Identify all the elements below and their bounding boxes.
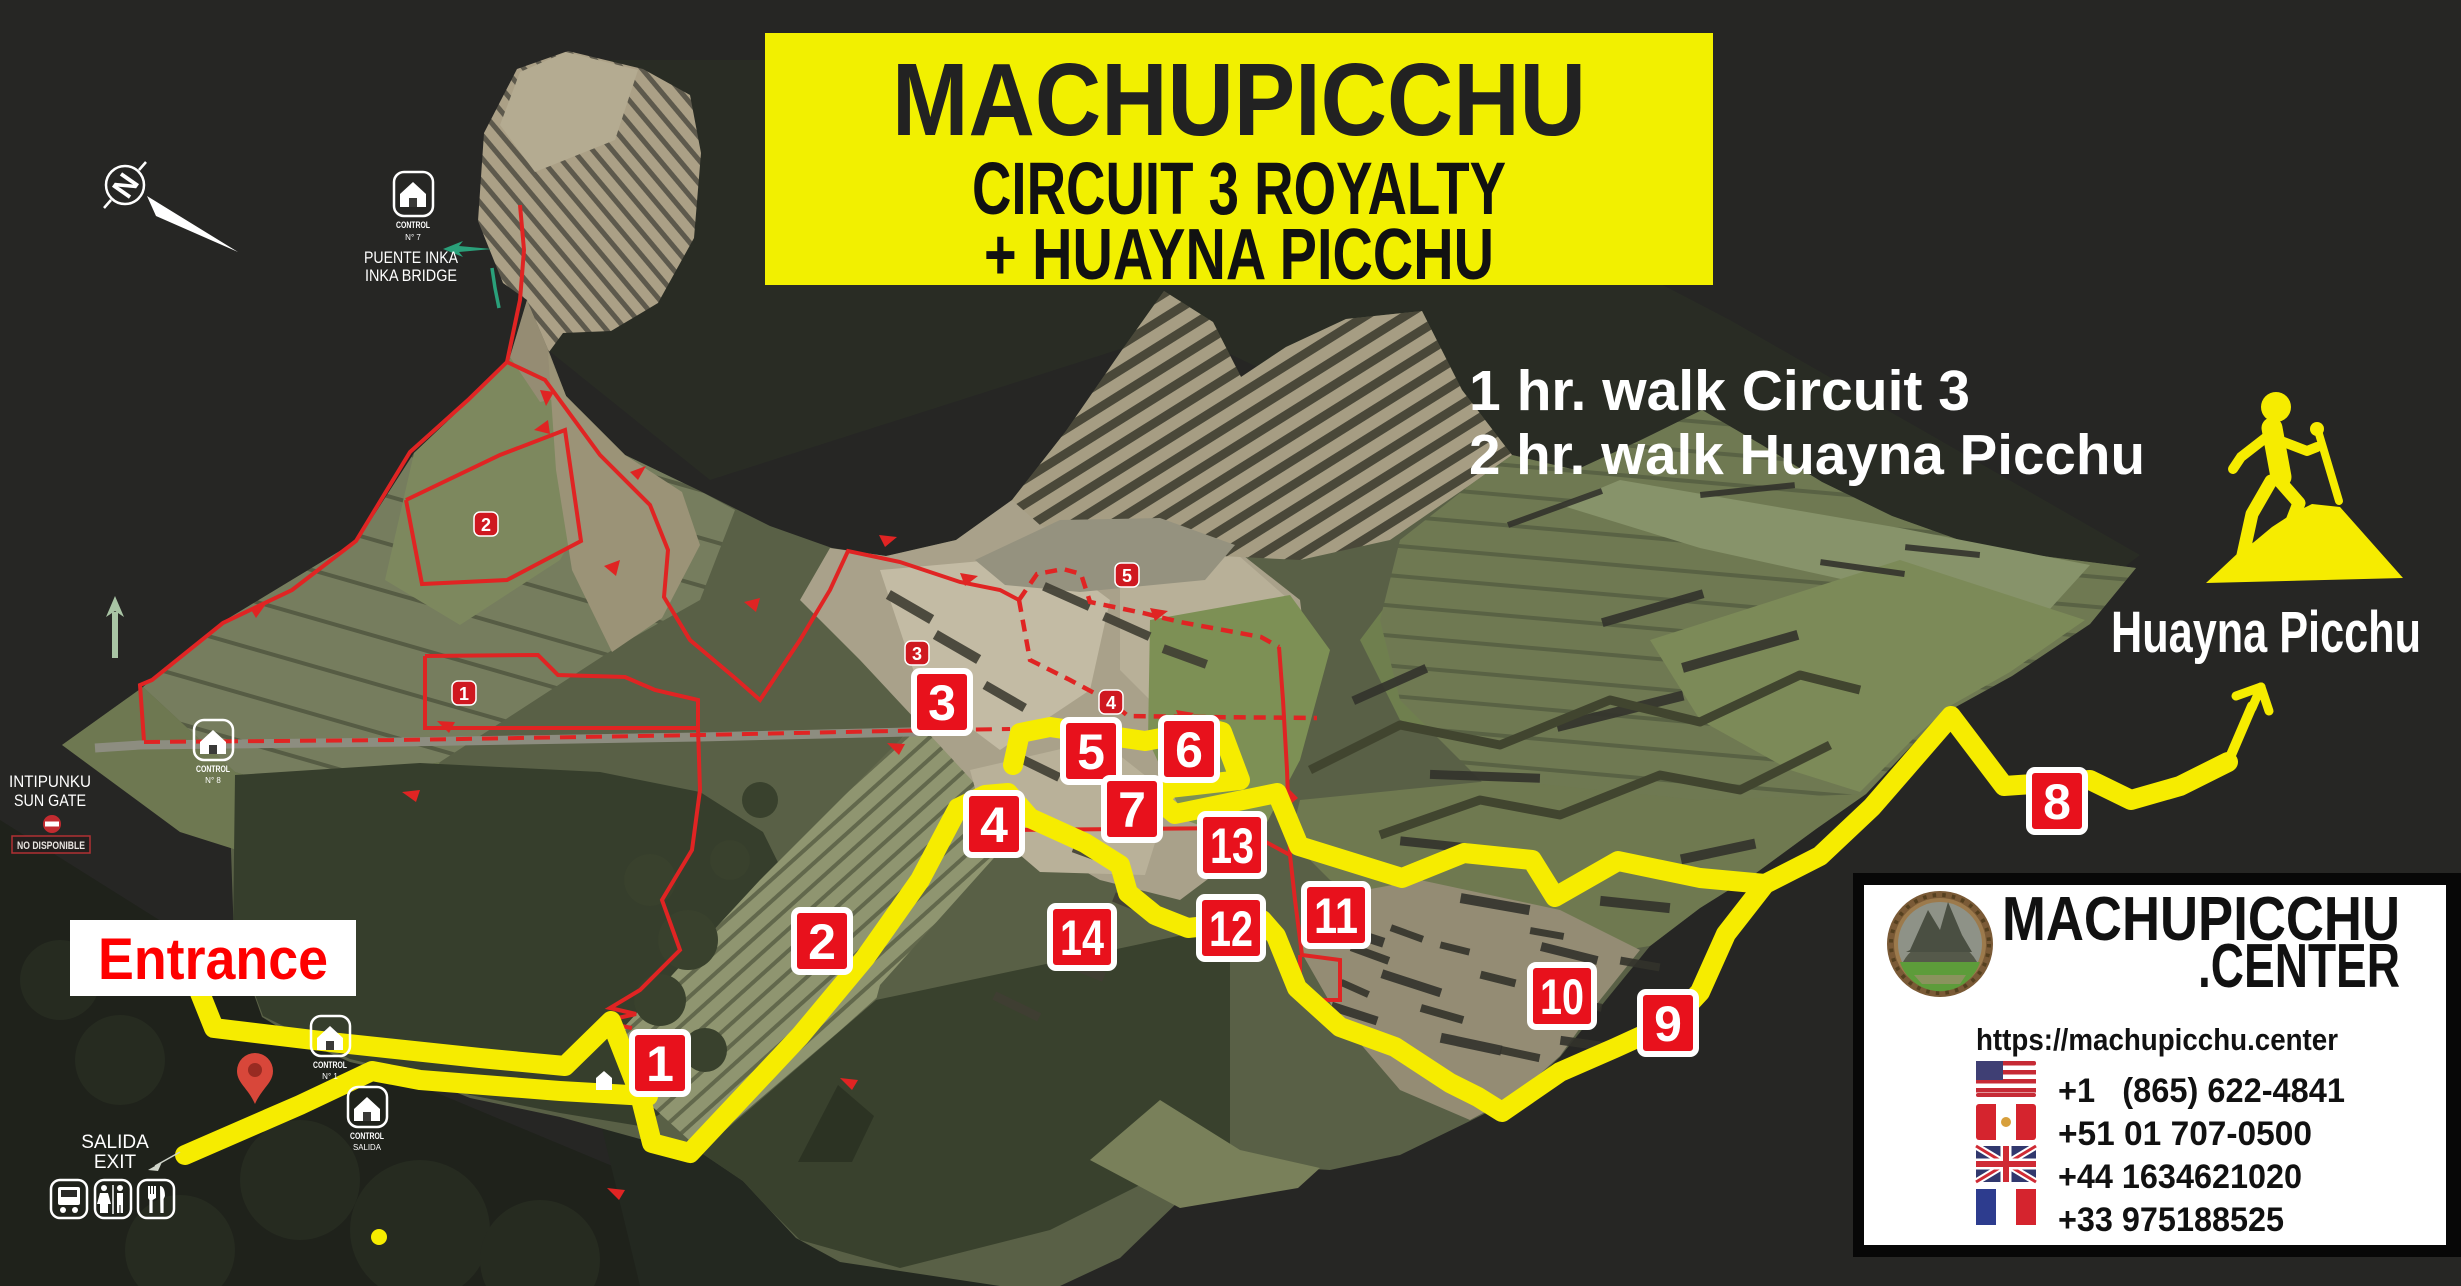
svg-text:5: 5 <box>1122 566 1132 586</box>
svg-text:5: 5 <box>1077 724 1105 780</box>
svg-text:SALIDA: SALIDA <box>353 1143 382 1152</box>
svg-text:N° 8: N° 8 <box>205 776 221 785</box>
svg-text:+33 975188525: +33 975188525 <box>2058 1201 2284 1239</box>
svg-text:SUN GATE: SUN GATE <box>14 791 86 810</box>
svg-text:8: 8 <box>2043 774 2071 830</box>
svg-text:4: 4 <box>980 797 1008 853</box>
svg-text:+51 01 707-0500: +51 01 707-0500 <box>2058 1115 2312 1153</box>
svg-text:2: 2 <box>481 515 491 535</box>
svg-text:4: 4 <box>1106 693 1116 713</box>
svg-text:INTIPUNKU: INTIPUNKU <box>9 772 91 791</box>
svg-text:+1 (865) 622-4841: +1 (865) 622-4841 <box>2058 1072 2345 1110</box>
svg-text:CONTROL: CONTROL <box>196 764 230 774</box>
svg-text:3: 3 <box>928 675 956 731</box>
svg-text:NO DISPONIBLE: NO DISPONIBLE <box>17 840 85 852</box>
svg-text:Huayna Picchu: Huayna Picchu <box>2111 600 2421 665</box>
svg-text:2 hr. walk Huayna Picchu: 2 hr. walk Huayna Picchu <box>1469 423 2145 487</box>
svg-text:https://machupicchu.center: https://machupicchu.center <box>1976 1022 2338 1057</box>
svg-text:7: 7 <box>1118 782 1146 838</box>
svg-text:1 hr. walk Circuit 3: 1 hr. walk Circuit 3 <box>1469 359 1970 423</box>
svg-text:MACHUPICCHU: MACHUPICCHU <box>892 42 1586 157</box>
svg-text:SALIDA: SALIDA <box>81 1132 149 1153</box>
svg-text:PUENTE INKA: PUENTE INKA <box>364 248 459 267</box>
svg-text:1: 1 <box>459 684 469 704</box>
svg-text:+44 1634621020: +44 1634621020 <box>2058 1158 2302 1196</box>
svg-text:11: 11 <box>1314 888 1358 944</box>
svg-text:6: 6 <box>1175 722 1203 778</box>
svg-text:12: 12 <box>1209 901 1253 957</box>
svg-text:Entrance: Entrance <box>98 927 328 992</box>
svg-text:9: 9 <box>1654 996 1682 1052</box>
svg-text:CONTROL: CONTROL <box>313 1060 347 1070</box>
svg-text:10: 10 <box>1540 969 1584 1025</box>
svg-text:EXIT: EXIT <box>94 1152 137 1173</box>
svg-text:1: 1 <box>646 1036 674 1092</box>
svg-text:2: 2 <box>808 914 836 970</box>
svg-text:+ HUAYNA PICCHU: + HUAYNA PICCHU <box>984 215 1494 295</box>
svg-text:.CENTER: .CENTER <box>2198 932 2400 1001</box>
svg-text:INKA BRIDGE: INKA BRIDGE <box>365 266 457 285</box>
svg-text:N° 1: N° 1 <box>322 1072 338 1081</box>
svg-text:3: 3 <box>912 644 922 664</box>
svg-text:14: 14 <box>1060 910 1104 966</box>
svg-text:13: 13 <box>1210 818 1254 874</box>
svg-text:CONTROL: CONTROL <box>396 220 430 230</box>
svg-text:N° 7: N° 7 <box>405 233 421 242</box>
svg-text:CONTROL: CONTROL <box>350 1131 384 1141</box>
